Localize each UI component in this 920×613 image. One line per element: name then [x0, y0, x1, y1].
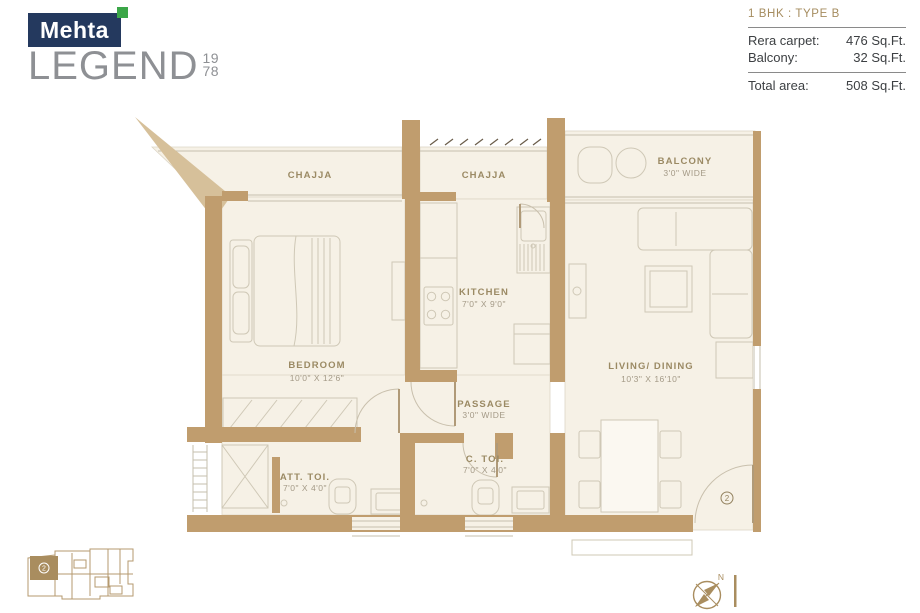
room-label-bedroom: BEDROOM: [288, 360, 345, 371]
room-label-att-toi: ATT. TOI.: [280, 472, 330, 483]
room-dim-passage: 3'0" WIDE: [462, 410, 505, 420]
floor-plan: CHAJJA CHAJJA BALCONY 3'0" WIDE KITCHEN …: [0, 0, 920, 613]
room-label-living-dining: LIVING/ DINING: [608, 361, 694, 372]
floor-areas: [152, 131, 755, 530]
room-dim-living-dining: 10'3" X 16'10": [621, 374, 681, 384]
compass-divider: [734, 575, 737, 607]
room-dim-balcony: 3'0" WIDE: [663, 168, 706, 178]
room-dim-c-toi: 7'0" X 4'0": [463, 465, 507, 475]
entrance-step: [572, 540, 692, 555]
compass-icon: N: [694, 572, 737, 609]
key-plan-unit-number: 2: [42, 566, 46, 573]
room-label-passage: PASSAGE: [457, 399, 510, 410]
room-label-chajja-1: CHAJJA: [288, 170, 333, 181]
duct-ladder: [193, 445, 207, 512]
unit-number: 2: [725, 494, 730, 503]
room-label-c-toi: C. TOI.: [466, 454, 504, 465]
room-label-chajja-2: CHAJJA: [462, 170, 507, 181]
key-plan: 2: [28, 549, 133, 599]
compass-north-label: N: [718, 572, 724, 582]
room-dim-bedroom: 10'0" X 12'6": [290, 373, 345, 383]
room-label-kitchen: KITCHEN: [459, 287, 509, 298]
room-dim-att-toi: 7'0" X 4'0": [283, 483, 327, 493]
chajja-hatch-marks: [430, 139, 541, 145]
room-dim-kitchen: 7'0" X 9'0": [462, 299, 506, 309]
room-label-balcony: BALCONY: [658, 156, 713, 167]
